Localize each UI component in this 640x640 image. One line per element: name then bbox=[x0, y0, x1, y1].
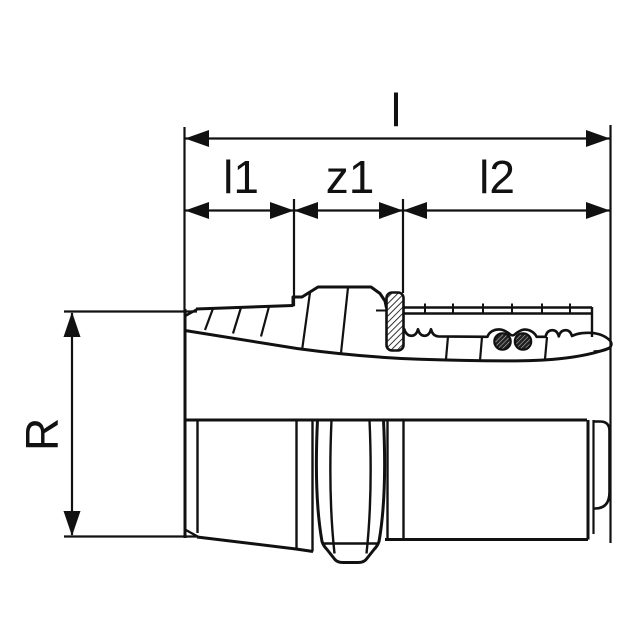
label-l2: l2 bbox=[479, 151, 515, 203]
arrowhead-l1-right bbox=[270, 202, 294, 219]
hex-nut bbox=[316, 420, 384, 563]
label-z1: z1 bbox=[326, 151, 375, 203]
arrowhead-l2-left bbox=[403, 202, 427, 219]
arrowhead-r-top bbox=[64, 312, 81, 337]
section-line-1 bbox=[302, 293, 310, 351]
arrowhead-z1-right bbox=[379, 202, 403, 219]
arrowhead-l2-right bbox=[586, 202, 610, 219]
section-line-4 bbox=[480, 337, 482, 361]
dimension-l2: l2 bbox=[403, 151, 610, 219]
arrowhead-z1-left bbox=[294, 202, 318, 219]
label-l: l bbox=[391, 84, 401, 136]
fitting-upper-profile bbox=[185, 287, 611, 538]
fitting-lower-body bbox=[185, 420, 610, 552]
section-line-2 bbox=[341, 288, 348, 354]
dimension-r: R bbox=[16, 312, 81, 536]
dimension-z1: z1 bbox=[294, 151, 403, 219]
dimension-l1: l1 bbox=[185, 151, 294, 219]
o-ring-2 bbox=[515, 333, 531, 349]
thread-flank-2 bbox=[233, 308, 241, 334]
technical-drawing-canvas: l l1 z1 l2 R bbox=[0, 0, 640, 640]
arrowhead-l1-left bbox=[185, 202, 209, 219]
section-line-3 bbox=[446, 337, 448, 360]
hex-nut-outline bbox=[316, 420, 384, 563]
thread-flank-3 bbox=[261, 307, 269, 337]
thread-hatching bbox=[205, 288, 547, 361]
arrowhead-r-bottom bbox=[64, 511, 81, 536]
press-indicator-ring bbox=[387, 293, 404, 351]
press-shoulder-bump bbox=[293, 287, 387, 308]
thread-top-edge bbox=[196, 306, 293, 310]
fitting-diagram: l l1 z1 l2 R bbox=[0, 0, 640, 640]
arrowhead-l-left bbox=[185, 130, 209, 147]
thread-flank-1 bbox=[205, 309, 213, 331]
label-l1: l1 bbox=[223, 151, 259, 203]
hex-nut-facet-right bbox=[367, 420, 371, 554]
dimension-l: l bbox=[185, 84, 610, 147]
o-ring-1 bbox=[494, 333, 510, 349]
label-r: R bbox=[16, 418, 68, 451]
hex-nut-facet-left bbox=[330, 420, 334, 554]
end-cap bbox=[594, 422, 610, 509]
arrowhead-l-right bbox=[586, 130, 610, 147]
section-line-5 bbox=[545, 337, 547, 359]
